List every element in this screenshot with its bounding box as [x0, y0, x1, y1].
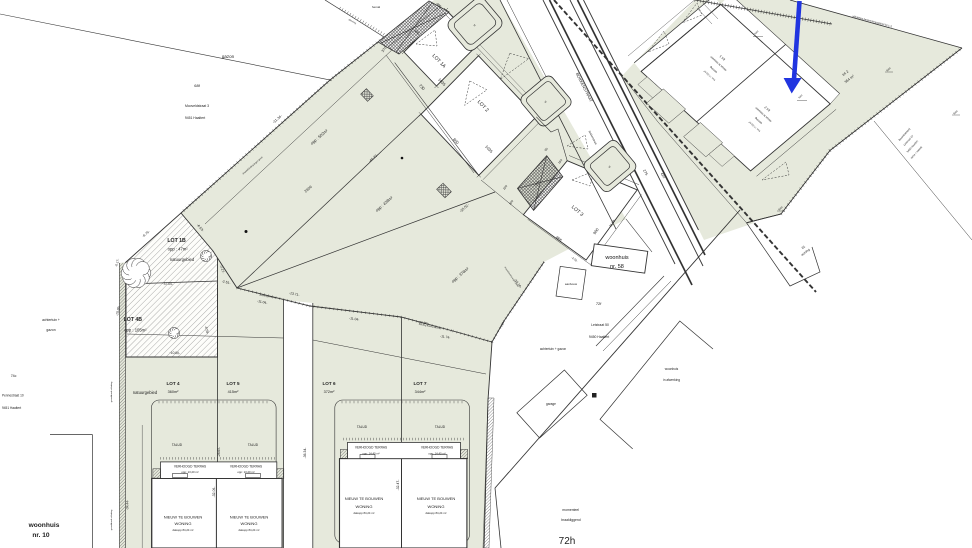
svg-text:TALUD: TALUD: [357, 425, 368, 429]
svg-text:natuurgebied: natuurgebied: [170, 257, 195, 262]
svg-text:72f: 72f: [596, 301, 602, 306]
svg-text:LOT 4: LOT 4: [166, 381, 179, 386]
svg-text:WONING: WONING: [175, 521, 192, 526]
svg-text:TALUD: TALUD: [435, 425, 446, 429]
svg-text:LOT 6: LOT 6: [322, 381, 335, 386]
svg-text:Pennestraat 10: Pennestraat 10: [2, 394, 24, 398]
svg-text:LOT 5: LOT 5: [226, 381, 239, 386]
svg-text:68f: 68f: [194, 83, 200, 88]
svg-text:-32.06-: -32.06-: [212, 487, 216, 498]
svg-text:opp: 13,20 m²: opp: 13,20 m²: [237, 470, 254, 474]
svg-text:dakopp 84,24 m²: dakopp 84,24 m²: [173, 528, 194, 532]
svg-text:9450 Haaltert: 9450 Haaltert: [589, 335, 609, 339]
svg-text:natuurgebied: natuurgebied: [133, 390, 158, 395]
svg-text:momenteel: momenteel: [562, 508, 579, 512]
svg-text:achtertuin +: achtertuin +: [42, 318, 60, 322]
svg-text:gronddraad afsluiting: gronddraad afsluiting: [110, 381, 113, 402]
svg-text:WONING: WONING: [428, 504, 445, 509]
svg-text:nr. 10: nr. 10: [32, 532, 50, 539]
svg-text:gazon: gazon: [222, 54, 235, 59]
svg-text:-34.44-: -34.44-: [126, 500, 130, 510]
svg-text:-10.80-: -10.80-: [169, 351, 180, 355]
svg-text:opp: 14,40 m²: opp: 14,40 m²: [428, 452, 445, 456]
svg-text:344m²: 344m²: [415, 390, 426, 394]
svg-text:Leistraat 50: Leistraat 50: [591, 323, 609, 327]
svg-text:VERHOOGD TERRAS: VERHOOGD TERRAS: [421, 446, 453, 450]
svg-text:VERHOOGD TERRAS: VERHOOGD TERRAS: [174, 465, 206, 469]
svg-text:gronddraad afsluiting: gronddraad afsluiting: [110, 509, 113, 530]
svg-text:achtertuin + gazon: achtertuin + gazon: [540, 347, 567, 351]
svg-text:Mooveldstraat 3: Mooveldstraat 3: [185, 104, 209, 108]
svg-text:TALUD: TALUD: [172, 443, 183, 447]
svg-text:woonhuis: woonhuis: [665, 367, 679, 371]
svg-text:LOT 4B: LOT 4B: [124, 317, 143, 323]
svg-text:opp: 14,40 m²: opp: 14,40 m²: [362, 452, 379, 456]
svg-text:72h: 72h: [559, 536, 576, 547]
svg-text:braakliggend: braakliggend: [561, 518, 581, 522]
svg-text:aanbouw: aanbouw: [565, 282, 578, 286]
svg-text:372m²: 372m²: [324, 390, 335, 394]
svg-text:360m²: 360m²: [168, 390, 179, 394]
svg-text:opp: 13,20 m²: opp: 13,20 m²: [181, 470, 198, 474]
svg-text:WONING: WONING: [241, 521, 258, 526]
svg-text:-28.65-: -28.65-: [217, 447, 221, 457]
svg-text:-36.34-: -36.34-: [303, 448, 307, 459]
svg-text:NIEUW TE BOUWEN: NIEUW TE BOUWEN: [345, 496, 384, 501]
svg-text:NIEUW TE BOUWEN: NIEUW TE BOUWEN: [417, 496, 456, 501]
svg-text:NIEUW TE BOUWEN: NIEUW TE BOUWEN: [164, 515, 203, 520]
svg-text:opp : 47m²: opp : 47m²: [168, 247, 189, 252]
svg-text:woonhuis: woonhuis: [604, 255, 628, 261]
svg-text:9451 Haaltert: 9451 Haaltert: [185, 116, 205, 120]
svg-text:TALUD: TALUD: [248, 443, 259, 447]
svg-text:nr. 58: nr. 58: [610, 264, 624, 270]
svg-text:dakopp 84,24 m²: dakopp 84,24 m²: [239, 528, 260, 532]
svg-text:LOT 7: LOT 7: [413, 381, 426, 386]
svg-text:415m²: 415m²: [228, 390, 239, 394]
svg-text:dakopp 84,24 m²: dakopp 84,24 m²: [426, 511, 447, 515]
svg-text:74c: 74c: [11, 374, 17, 378]
svg-text:hemal: hemal: [372, 5, 381, 9]
svg-text:gazon: gazon: [46, 328, 55, 332]
svg-text:LOT 1B: LOT 1B: [167, 238, 186, 244]
svg-text:dakopp 84,24 m²: dakopp 84,24 m²: [354, 511, 375, 515]
svg-text:VERHOOGD TERRAS: VERHOOGD TERRAS: [230, 465, 262, 469]
svg-text:VERHOOGD TERRAS: VERHOOGD TERRAS: [355, 446, 387, 450]
svg-text:9451 Haaltert: 9451 Haaltert: [2, 406, 21, 410]
svg-text:-11.04-: -11.04-: [162, 281, 173, 286]
svg-text:NIEUW TE BOUWEN: NIEUW TE BOUWEN: [230, 515, 269, 520]
svg-text:opp : 105m²: opp : 105m²: [124, 327, 147, 332]
svg-text:WONING: WONING: [356, 504, 373, 509]
svg-text:in afwerking: in afwerking: [663, 378, 680, 382]
svg-text:garage: garage: [546, 402, 556, 406]
svg-text:-32.47-: -32.47-: [396, 480, 400, 491]
svg-text:woonhuis: woonhuis: [28, 522, 60, 529]
